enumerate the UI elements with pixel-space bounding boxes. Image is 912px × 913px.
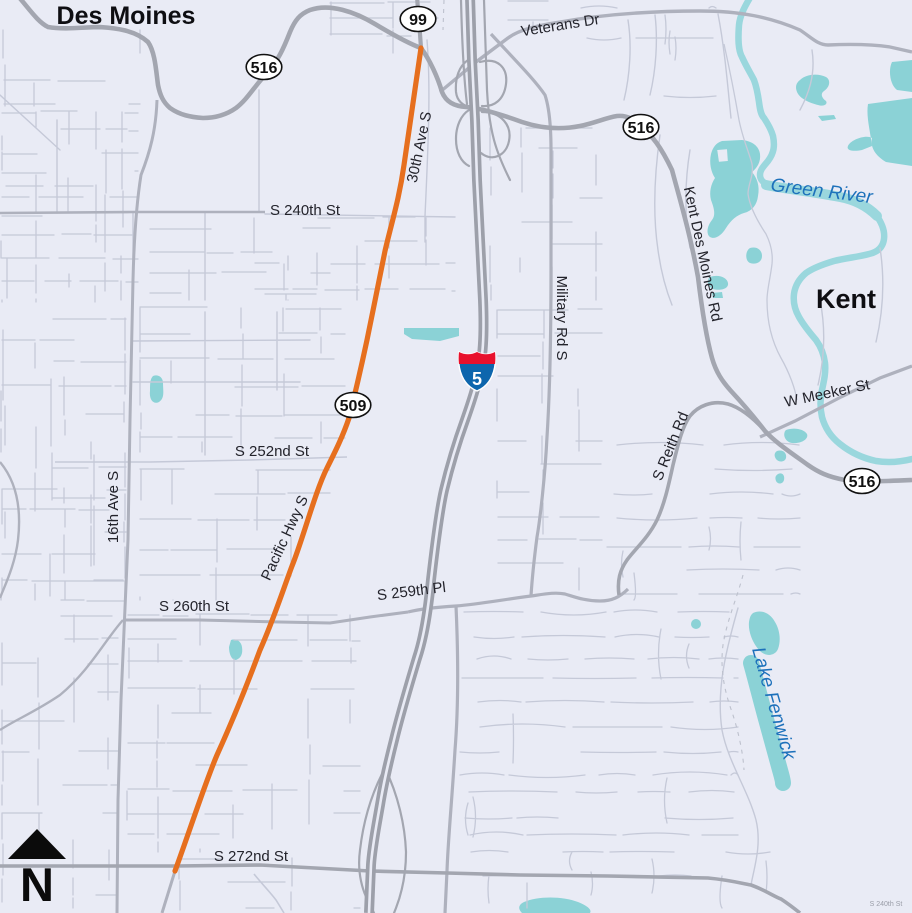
svg-text:5: 5 <box>472 369 482 389</box>
svg-text:Military Rd S: Military Rd S <box>553 275 570 360</box>
svg-text:Kent: Kent <box>816 284 876 314</box>
svg-text:99: 99 <box>409 12 427 29</box>
svg-text:S 272nd St: S 272nd St <box>214 848 289 865</box>
svg-text:16th Ave S: 16th Ave S <box>105 471 122 543</box>
svg-text:516: 516 <box>628 120 655 137</box>
svg-text:S 260th St: S 260th St <box>159 598 230 615</box>
svg-text:S 252nd St: S 252nd St <box>235 443 310 460</box>
svg-text:S 240th St: S 240th St <box>870 901 903 908</box>
svg-text:Des Moines: Des Moines <box>57 2 196 30</box>
svg-text:S 240th St: S 240th St <box>270 202 341 219</box>
svg-text:509: 509 <box>340 398 367 415</box>
svg-text:516: 516 <box>849 474 876 491</box>
svg-text:N: N <box>20 858 54 911</box>
svg-text:516: 516 <box>251 60 278 77</box>
